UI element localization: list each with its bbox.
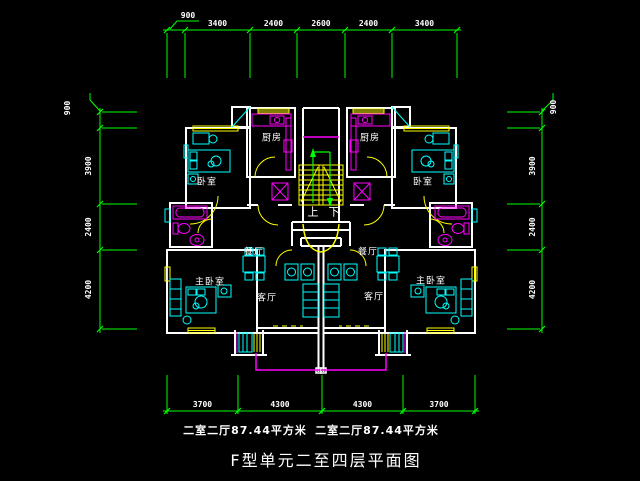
dimension-text: 3400 bbox=[415, 19, 434, 28]
dimension-text: 2400 bbox=[528, 217, 537, 236]
dimension-text: 3900 bbox=[528, 156, 537, 175]
room-label-master-right: 主卧室 bbox=[416, 278, 446, 287]
dimension-text: 2600 bbox=[311, 19, 330, 28]
dimension-text: 4200 bbox=[528, 280, 537, 299]
floor-plan-drawing: 3400240026002400340090037004300430037003… bbox=[0, 0, 640, 481]
dimension-text: 3700 bbox=[429, 400, 448, 409]
unit-area-label-right: 二室二厅87.44平方米 bbox=[315, 422, 439, 438]
stair-down-label: 下 bbox=[329, 207, 340, 218]
room-label-bedroom-left: 卧室 bbox=[197, 179, 217, 188]
room-label-dining-right: 餐厅 bbox=[358, 249, 378, 258]
dimension-text: 2400 bbox=[84, 217, 93, 236]
dimension-text: 3700 bbox=[193, 400, 212, 409]
room-label-master-left: 主卧室 bbox=[195, 279, 225, 288]
stairwell bbox=[299, 148, 343, 207]
dimension-bottom: 3700430043003700 bbox=[163, 375, 479, 414]
dimension-text: 4200 bbox=[84, 280, 93, 299]
stair-up-label: 上 bbox=[308, 207, 319, 218]
floor-plan-right-unit bbox=[321, 107, 477, 373]
dimension-text: 900 bbox=[63, 101, 72, 116]
room-label-bedroom-right: 卧室 bbox=[413, 179, 433, 188]
cad-floor-plan-canvas: 3400240026002400340090037004300430037003… bbox=[0, 0, 640, 481]
dimension-text: 3400 bbox=[208, 19, 227, 28]
unit-area-label-left: 二室二厅87.44平方米 bbox=[183, 422, 307, 438]
dimension-left: 390024004200900 bbox=[63, 93, 137, 333]
dimension-top: 34002400260024003400900 bbox=[163, 11, 461, 78]
room-label-dining-left: 餐厅 bbox=[244, 249, 264, 258]
room-label-living-left: 客厅 bbox=[257, 295, 277, 304]
room-label-kitchen-left: 厨房 bbox=[262, 135, 282, 144]
dimension-text: 2400 bbox=[359, 19, 378, 28]
dimension-text: 900 bbox=[181, 11, 196, 20]
dimension-text: 4300 bbox=[270, 400, 289, 409]
dimension-text: 2400 bbox=[264, 19, 283, 28]
dimension-text: 4300 bbox=[353, 400, 372, 409]
room-label-living-right: 客厅 bbox=[364, 294, 384, 303]
dimension-right: 390024004200900 bbox=[507, 93, 558, 333]
drawing-title: F型单元二至四层平面图 bbox=[230, 447, 421, 471]
room-label-kitchen-right: 厨房 bbox=[360, 135, 380, 144]
dimension-text: 900 bbox=[549, 100, 558, 115]
dimension-text: 3900 bbox=[84, 156, 93, 175]
floor-plan-left-unit bbox=[165, 107, 321, 373]
